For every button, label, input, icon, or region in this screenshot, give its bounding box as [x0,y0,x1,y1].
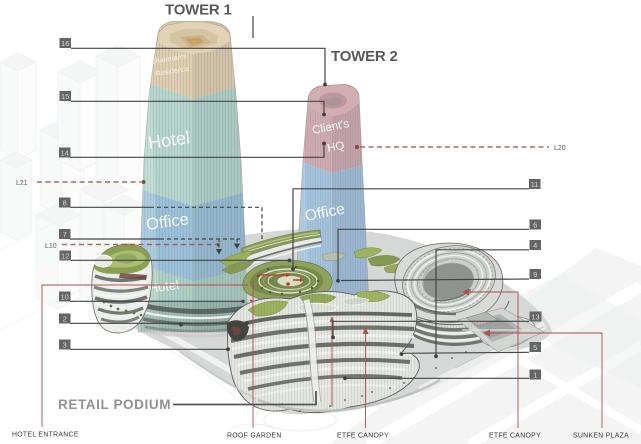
svg-text:RETAIL PODIUM: RETAIL PODIUM [58,397,171,412]
svg-text:10: 10 [61,292,69,301]
svg-text:3: 3 [63,340,67,349]
svg-text:16: 16 [61,39,69,48]
svg-text:L10: L10 [45,243,57,250]
svg-text:11: 11 [531,180,539,189]
svg-text:9: 9 [533,270,537,279]
svg-text:6: 6 [533,220,537,229]
svg-text:7: 7 [63,230,67,239]
svg-text:ROOF GARDEN: ROOF GARDEN [227,433,282,440]
svg-text:HOTEL ENTRANCE: HOTEL ENTRANCE [12,432,79,439]
svg-text:2: 2 [63,314,67,323]
svg-text:5: 5 [533,343,537,352]
svg-text:15: 15 [61,92,69,101]
svg-text:8: 8 [63,198,67,207]
svg-text:12: 12 [61,251,69,260]
svg-text:TOWER 2: TOWER 2 [331,48,398,65]
svg-text:14: 14 [61,148,69,157]
svg-text:L21: L21 [16,180,28,187]
svg-text:ETFE CANOPY: ETFE CANOPY [337,433,389,440]
svg-text:SUNKEN PLAZA: SUNKEN PLAZA [573,433,629,440]
svg-text:4: 4 [533,241,537,250]
svg-text:13: 13 [531,312,539,321]
svg-text:ETFE CANOPY: ETFE CANOPY [489,433,541,440]
svg-text:L20: L20 [554,145,566,152]
svg-text:1: 1 [533,370,537,379]
svg-text:TOWER 1: TOWER 1 [165,2,232,19]
